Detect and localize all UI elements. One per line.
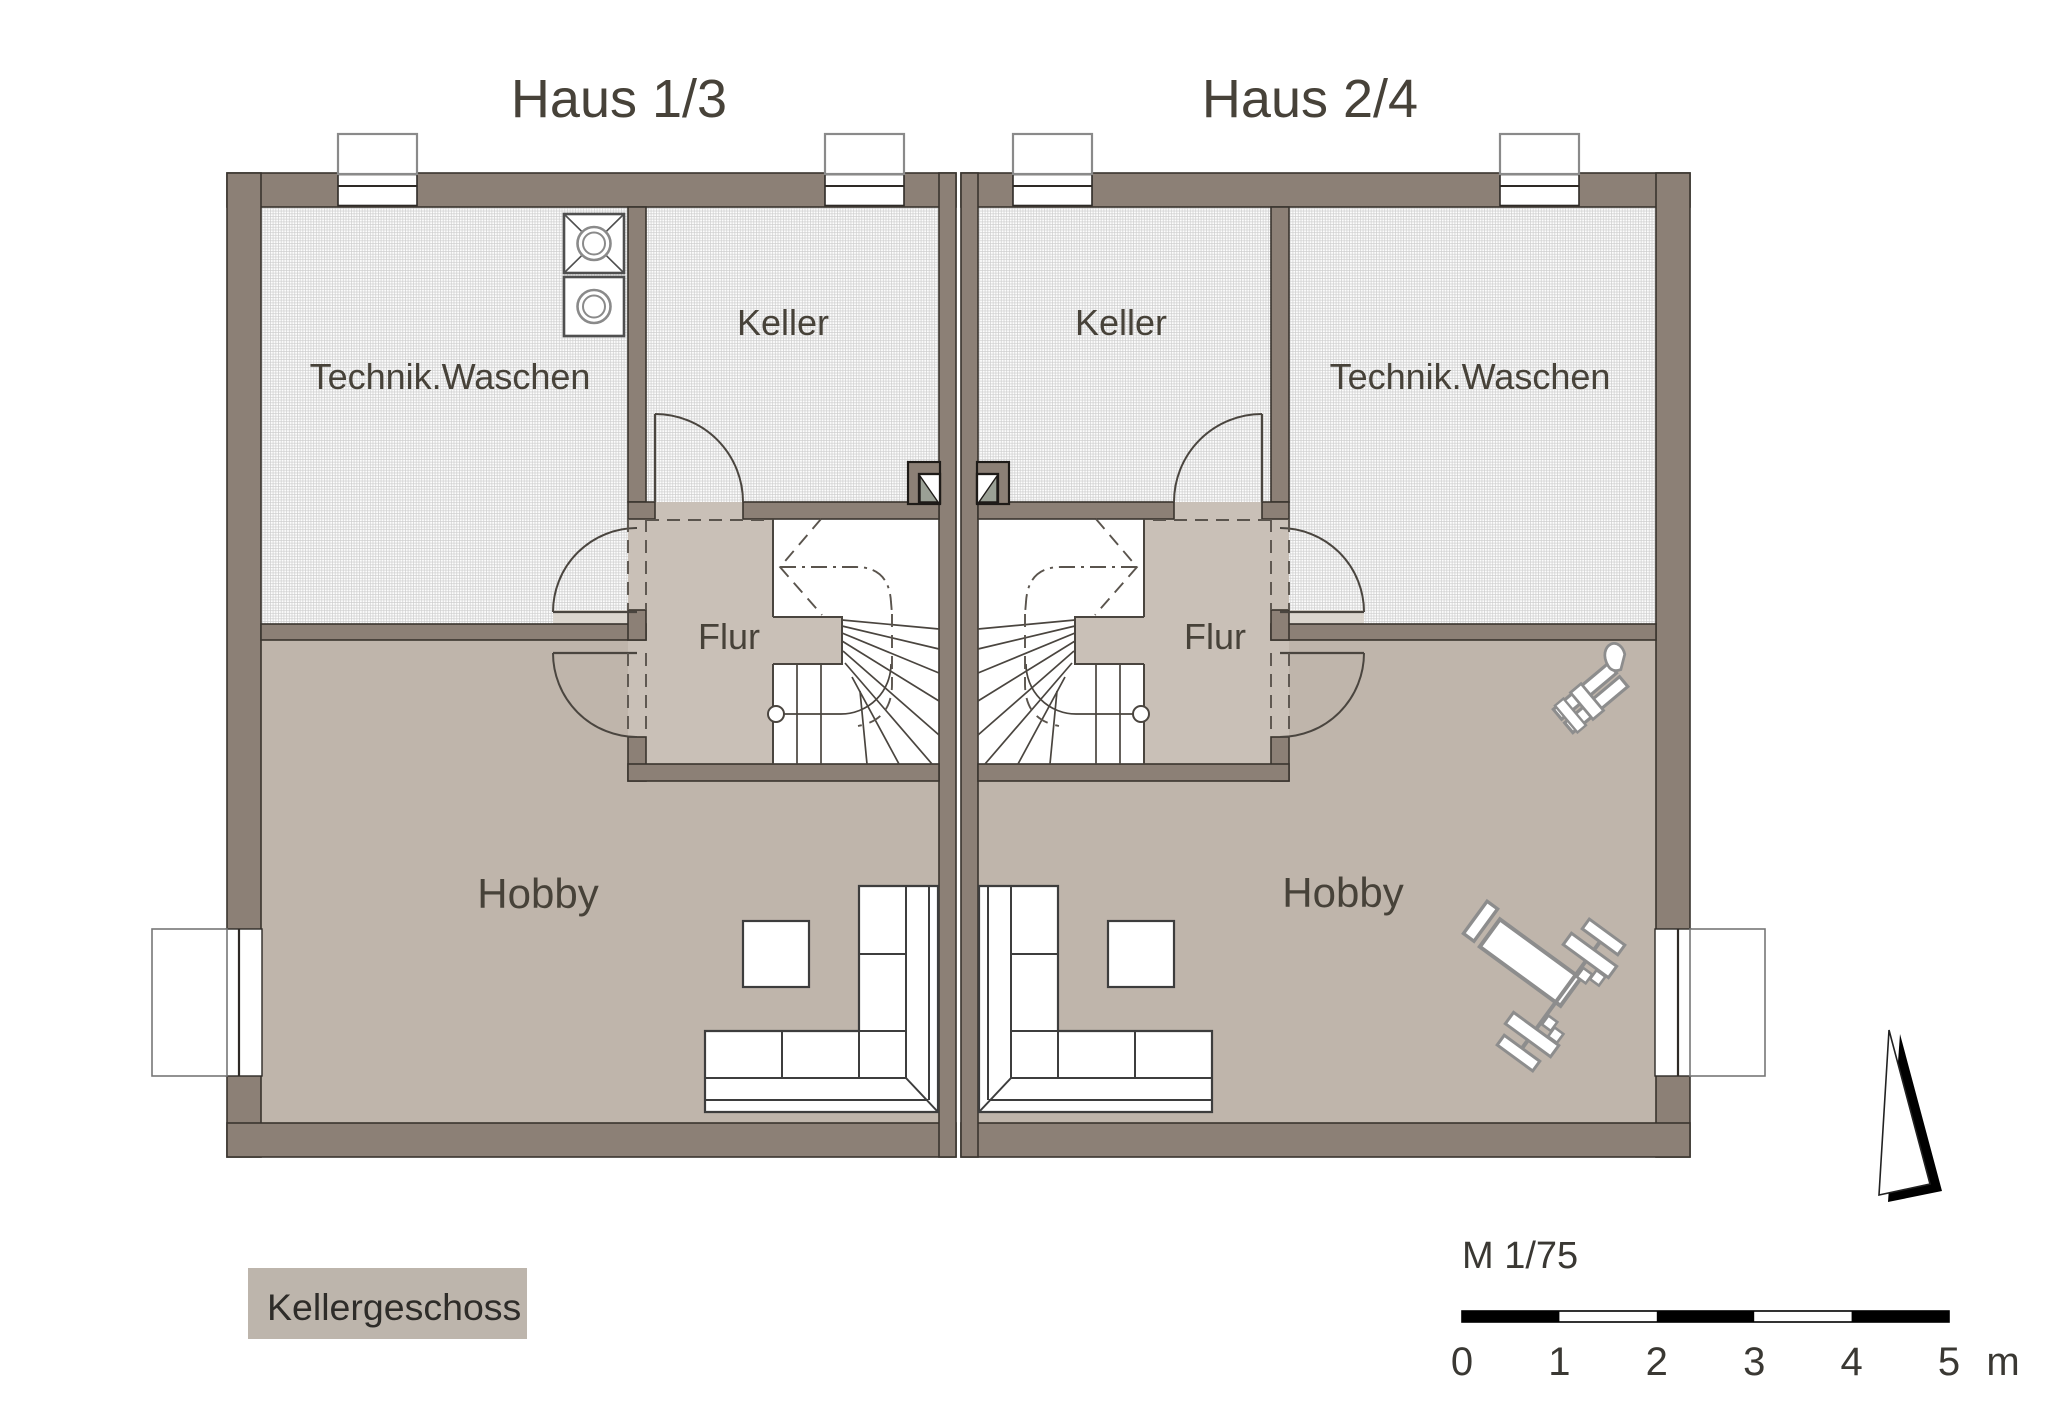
svg-text:Flur: Flur: [1184, 616, 1246, 657]
svg-text:m: m: [1986, 1340, 2019, 1384]
svg-text:2: 2: [1646, 1340, 1668, 1384]
svg-text:Haus 2/4: Haus 2/4: [1202, 69, 1418, 129]
svg-text:Kellergeschoss: Kellergeschoss: [267, 1286, 521, 1328]
svg-text:M 1/75: M 1/75: [1462, 1235, 1578, 1277]
svg-text:Hobby: Hobby: [477, 870, 598, 917]
svg-text:Keller: Keller: [737, 302, 829, 343]
svg-text:Haus 1/3: Haus 1/3: [511, 69, 727, 129]
svg-text:Technik.Waschen: Technik.Waschen: [310, 356, 591, 397]
svg-text:Hobby: Hobby: [1282, 869, 1403, 916]
svg-text:5: 5: [1938, 1340, 1960, 1384]
svg-text:3: 3: [1743, 1340, 1765, 1384]
svg-text:1: 1: [1548, 1340, 1570, 1384]
svg-text:0: 0: [1451, 1340, 1473, 1384]
svg-text:Keller: Keller: [1075, 302, 1167, 343]
svg-text:4: 4: [1840, 1340, 1862, 1384]
svg-text:Flur: Flur: [698, 616, 760, 657]
svg-text:Technik.Waschen: Technik.Waschen: [1330, 356, 1611, 397]
